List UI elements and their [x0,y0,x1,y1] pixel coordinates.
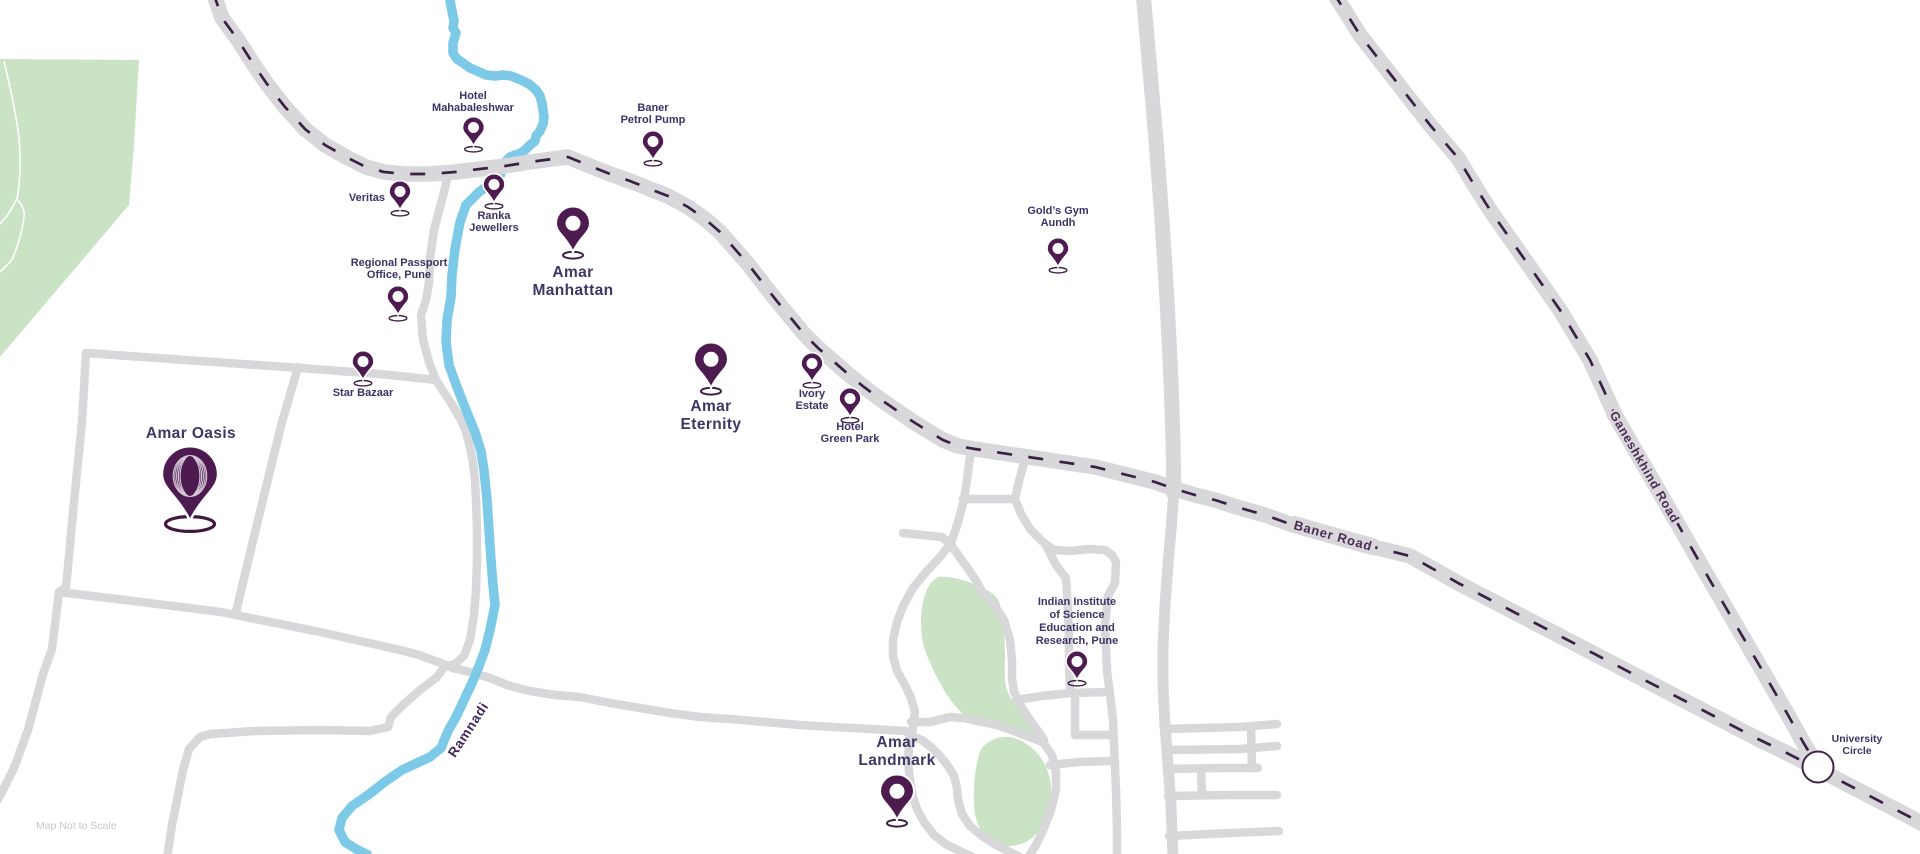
svg-text:Gold’s Gym: Gold’s Gym [1027,205,1089,217]
svg-text:Amar Oasis: Amar Oasis [146,425,236,442]
svg-text:Ranka: Ranka [477,210,511,222]
svg-text:Aundh: Aundh [1041,217,1076,229]
svg-text:Regional Passport: Regional Passport [351,257,448,269]
svg-text:Star Bazaar: Star Bazaar [333,387,394,399]
svg-text:of Science: of Science [1049,609,1104,621]
svg-text:Circle: Circle [1842,745,1871,757]
svg-text:Indian Institute: Indian Institute [1038,596,1116,608]
svg-text:Manhattan: Manhattan [532,282,613,299]
svg-text:Office, Pune: Office, Pune [367,269,431,281]
svg-text:Landmark: Landmark [858,752,935,769]
svg-text:Mahabaleshwar: Mahabaleshwar [432,102,515,114]
svg-text:Research, Pune: Research, Pune [1036,635,1119,647]
svg-text:Education and: Education and [1039,622,1115,634]
svg-text:Amar: Amar [876,734,917,751]
svg-text:Green Park: Green Park [821,433,881,445]
svg-text:Ivory: Ivory [799,388,826,400]
svg-text:Estate: Estate [795,400,828,412]
svg-text:Amar: Amar [552,264,593,281]
svg-text:Hotel: Hotel [836,421,864,433]
svg-text:University: University [1832,733,1883,745]
svg-text:Petrol Pump: Petrol Pump [621,114,686,126]
svg-text:Eternity: Eternity [681,416,742,433]
svg-text:Hotel: Hotel [459,90,487,102]
svg-text:Amar: Amar [690,398,731,415]
svg-text:Map Not to Scale: Map Not to Scale [36,820,117,832]
svg-text:Baner: Baner [637,102,669,114]
svg-text:Jewellers: Jewellers [469,222,519,234]
svg-text:Veritas: Veritas [349,192,385,204]
